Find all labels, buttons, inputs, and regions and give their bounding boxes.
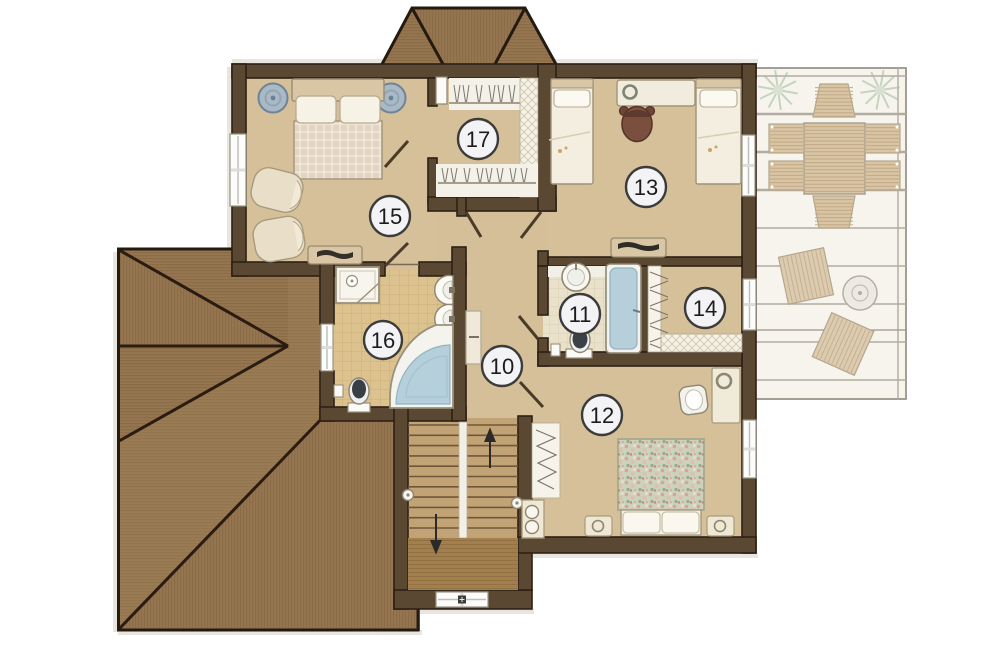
svg-text:13: 13 [634,175,658,200]
svg-text:10: 10 [490,354,514,379]
svg-text:17: 17 [466,127,490,152]
svg-text:14: 14 [693,296,717,321]
svg-text:11: 11 [569,302,592,327]
svg-text:16: 16 [371,328,395,353]
svg-text:12: 12 [590,403,614,428]
svg-text:15: 15 [378,204,402,229]
